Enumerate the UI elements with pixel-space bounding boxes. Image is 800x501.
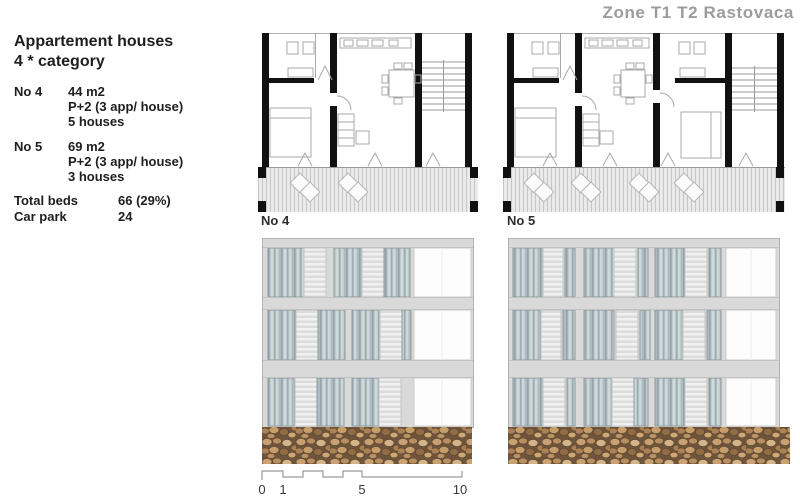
unit-no4-label: No 4 <box>14 84 68 129</box>
unit-no5-specs: No 5 69 m2 P+2 (3 app/ house) 3 houses <box>14 139 183 184</box>
scale-tick-5: 5 <box>358 482 365 497</box>
unit-no5-details: 69 m2 P+2 (3 app/ house) 3 houses <box>68 139 183 184</box>
elevation-no5 <box>508 238 790 464</box>
unit-no5-area: 69 m2 <box>68 139 183 154</box>
plan5-furniture <box>515 33 753 166</box>
info-heading: Appartement houses 4 * category <box>14 32 173 72</box>
architectural-sheet: Zone T1 T2 Rastovaca Appartement houses … <box>0 0 800 501</box>
scale-tick-0: 0 <box>258 482 265 497</box>
scale-bar: 0 1 5 10 <box>255 462 470 500</box>
floor-plan-no4 <box>258 30 478 212</box>
car-park-row: Car park 24 <box>14 209 171 225</box>
unit-no5-houses: 3 houses <box>68 169 183 184</box>
plan4-furniture <box>270 33 440 166</box>
unit-no4-houses: 5 houses <box>68 114 183 129</box>
unit-no5-label: No 5 <box>14 139 68 184</box>
total-beds-label: Total beds <box>14 193 118 209</box>
info-heading-line1: Appartement houses <box>14 32 173 52</box>
elevation-no4 <box>262 238 476 464</box>
page-title: Zone T1 T2 Rastovaca <box>602 3 794 23</box>
total-beds-value: 66 (29%) <box>118 193 171 209</box>
plan5-stair <box>732 66 777 112</box>
unit-no4-config: P+2 (3 app/ house) <box>68 99 183 114</box>
plan5-caption: No 5 <box>507 213 535 228</box>
plan4-caption: No 4 <box>261 213 289 228</box>
elevation5-stone-base <box>508 427 790 464</box>
plan5-terrace <box>503 167 785 212</box>
car-park-label: Car park <box>14 209 118 225</box>
car-park-value: 24 <box>118 209 132 225</box>
unit-no5-config: P+2 (3 app/ house) <box>68 154 183 169</box>
total-beds-row: Total beds 66 (29%) <box>14 193 171 209</box>
unit-no4-specs: No 4 44 m2 P+2 (3 app/ house) 5 houses <box>14 84 183 129</box>
plan4-walls <box>262 33 472 168</box>
scale-bar-line <box>262 471 462 480</box>
totals-block: Total beds 66 (29%) Car park 24 <box>14 193 171 224</box>
unit-no4-details: 44 m2 P+2 (3 app/ house) 5 houses <box>68 84 183 129</box>
elevation4-windows <box>268 248 471 426</box>
plan4-terrace <box>258 167 478 212</box>
plan4-stair <box>422 60 465 112</box>
unit-no4-area: 44 m2 <box>68 84 183 99</box>
floor-plan-no5 <box>503 30 785 212</box>
elevation5-windows <box>513 248 776 426</box>
scale-tick-1: 1 <box>279 482 286 497</box>
plan5-walls <box>507 33 784 168</box>
info-heading-line2: 4 * category <box>14 52 173 72</box>
elevation4-stone-base <box>262 427 472 464</box>
scale-tick-10: 10 <box>453 482 467 497</box>
